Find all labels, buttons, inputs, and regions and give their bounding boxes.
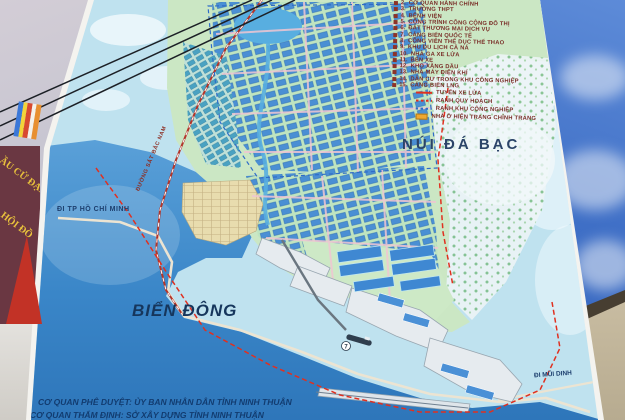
label-bien-dong: BIỂN ĐÔNG (132, 301, 237, 321)
legend-line-symbol-icon (415, 114, 427, 120)
appraising-agency-line: CƠ QUAN THẨM ĐỊNH: SỞ XÂY DỰNG TỈNH NINH… (30, 410, 264, 420)
legend-line-label: RANH QUY HOẠCH (436, 98, 493, 105)
legend-item-number: 11. (400, 57, 408, 63)
legend-swatch-icon (393, 26, 397, 30)
approving-agency-line: CƠ QUAN PHÊ DUYỆT: ỦY BAN NHÂN DÂN TỈNH … (38, 397, 292, 407)
sea-glare (40, 185, 180, 285)
legend-item-number: 5. (400, 19, 405, 25)
lagoon (234, 8, 302, 44)
mountain-highlight (445, 115, 555, 205)
legend-item-number: 14. (399, 76, 407, 82)
legend-item-number: 12. (400, 63, 408, 69)
map-badge-7: 7 (342, 342, 351, 351)
legend-swatch-icon (394, 14, 398, 18)
banner-text-fragment: HỘI ĐỒ (0, 210, 35, 241)
legend-swatch-icon (393, 45, 397, 49)
legend-line-list: TUYẾN XE LỬA RANH QUY HOẠCH RANH KHU CÔN… (391, 88, 567, 124)
legend-item-label: CẢNG BIỂN LNG (410, 82, 459, 89)
billboard-map: 7 NÚI ĐÁ BẠC BIỂN ĐÔNG ĐI TP HỒ CHÍ MINH… (0, 0, 625, 420)
legend-line-symbol-icon (416, 108, 432, 110)
map-legend: 2. CƠ QUAN HÀNH CHÍNH 3. TRƯỜNG THPT 4. … (391, 0, 568, 124)
legend-swatch-icon (392, 70, 396, 74)
label-nui-da-bac: NÚI ĐÁ BẠC (402, 136, 520, 153)
legend-swatch-icon (393, 39, 397, 43)
legend-swatch-icon (392, 83, 396, 87)
legend-line-symbol-icon (416, 100, 432, 102)
legend-item-number: 6. (400, 25, 405, 31)
legend-swatch-icon (393, 52, 397, 56)
legend-item-number: 2. (401, 0, 406, 6)
legend-item-number: 15. (399, 82, 407, 88)
legend-item-number: 4. (401, 13, 406, 19)
legend-swatch-icon (393, 20, 397, 24)
label-road-to-hcmc: ĐI TP HỒ CHÍ MINH (57, 206, 130, 213)
legend-line-label: NHÀ Ở HIỆN TRẠNG CHỈNH TRANG (431, 114, 536, 122)
legend-item-number: 8. (400, 38, 405, 44)
legend-swatch-icon (394, 7, 398, 11)
legend-swatch-icon (393, 58, 397, 62)
cloud (560, 55, 625, 100)
legend-item-number: 7. (400, 32, 405, 38)
legend-swatch-icon (392, 77, 396, 81)
legend-line-symbol-icon (416, 92, 432, 94)
legend-swatch-icon (393, 64, 397, 68)
legend-swatch-icon (393, 33, 397, 37)
legend-line-label: TUYẾN XE LỬA (436, 90, 482, 97)
legend-item-number: 13. (399, 70, 407, 76)
legend-swatch-icon (394, 1, 398, 5)
banner-text-fragment: ẦU CỬ ĐẠI BI (0, 155, 40, 204)
legend-item-number: 9. (400, 44, 405, 50)
legend-item-number: 3. (401, 7, 406, 13)
legend-item-number: 10. (400, 51, 408, 57)
